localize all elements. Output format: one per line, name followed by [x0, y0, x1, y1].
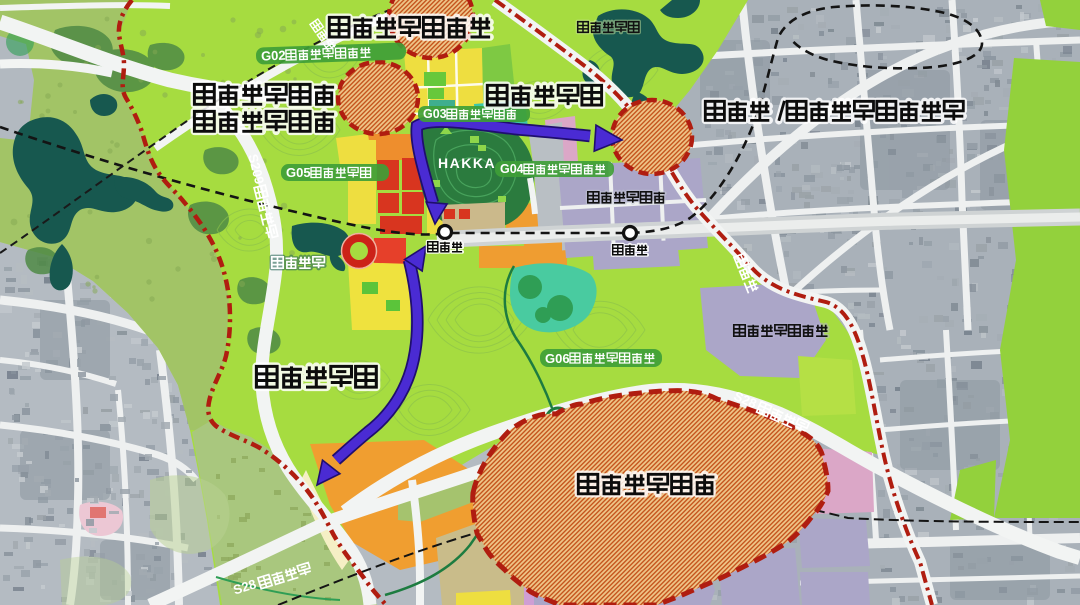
svg-text:G03: G03: [423, 107, 447, 121]
svg-text:HAKKA: HAKKA: [438, 155, 496, 171]
svg-text:G02: G02: [261, 48, 286, 64]
svg-text:G06: G06: [545, 351, 570, 366]
svg-text:G05: G05: [286, 165, 311, 180]
svg-text:G04: G04: [500, 162, 524, 176]
